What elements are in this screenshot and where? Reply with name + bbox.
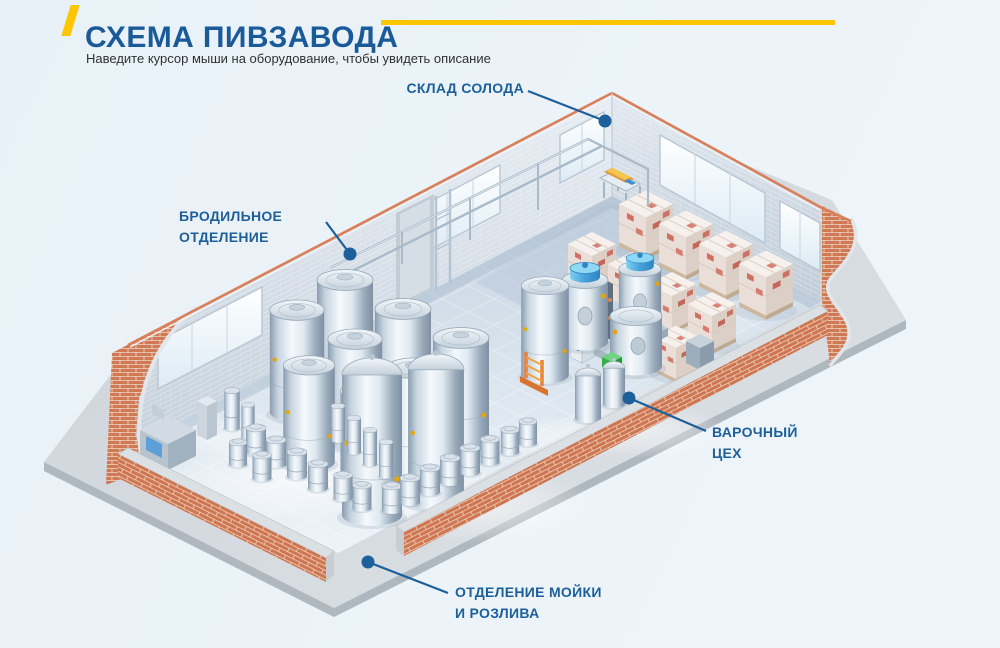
label-malt-warehouse: СКЛАД СОЛОДА xyxy=(380,78,524,99)
label-washing-bottling: ОТДЕЛЕНИЕ МОЙКИ И РОЗЛИВА xyxy=(455,582,602,624)
label-brewhouse: ВАРОЧНЫЙ ЦЕХ xyxy=(712,422,798,464)
label-fermentation: БРОДИЛЬНОЕ ОТДЕЛЕНИЕ xyxy=(179,206,282,248)
hotspot-washing-bottling[interactable] xyxy=(362,556,375,569)
hotspot-fermentation[interactable] xyxy=(344,248,357,261)
brewery-scheme-page: СХЕМА ПИВЗАВОДА Наведите курсор мыши на … xyxy=(0,0,1000,648)
hotspot-malt-warehouse[interactable] xyxy=(599,115,612,128)
hotspot-brewhouse[interactable] xyxy=(623,392,636,405)
